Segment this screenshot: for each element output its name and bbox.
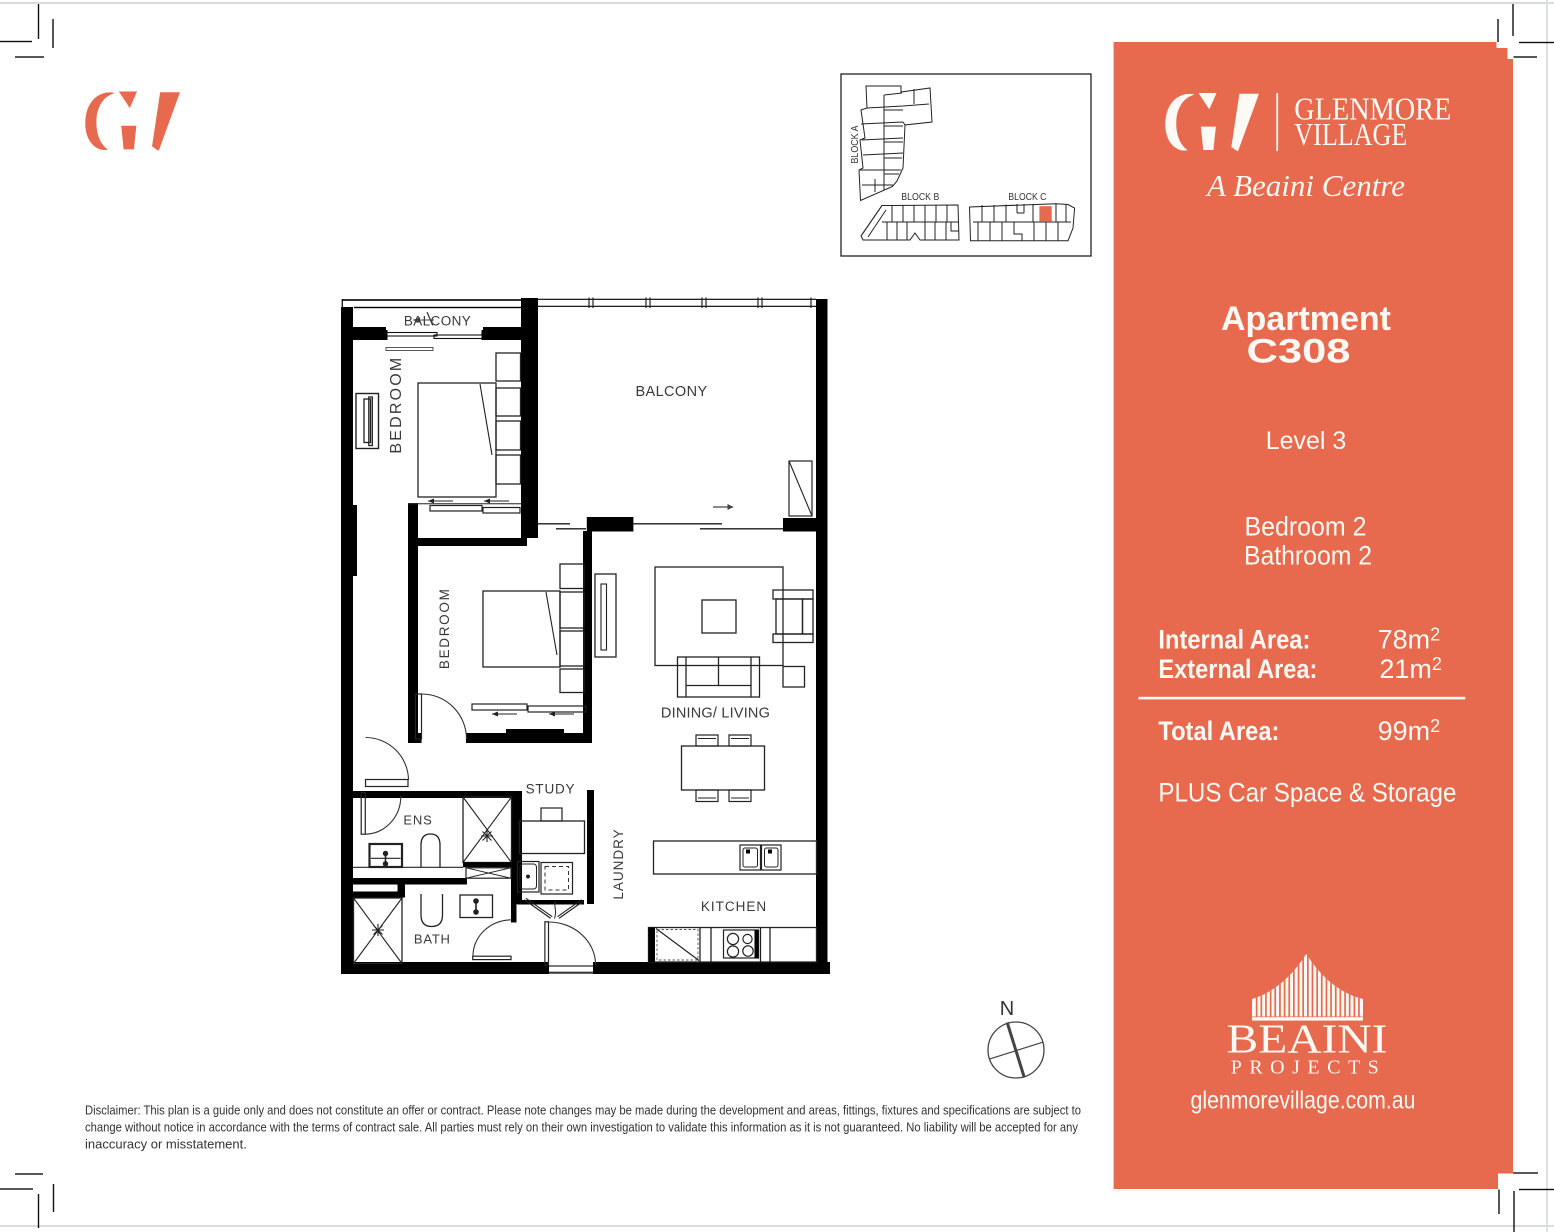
svg-text:BEAINI: BEAINI	[1227, 1016, 1388, 1062]
svg-text:BLOCK A: BLOCK A	[850, 125, 861, 163]
svg-text:BATH: BATH	[414, 932, 451, 947]
svg-text:BEDROOM: BEDROOM	[388, 356, 405, 454]
svg-text:LAUNDRY: LAUNDRY	[611, 828, 626, 899]
svg-text:Level 3: Level 3	[1266, 427, 1347, 455]
svg-text:inaccuracy or misstatement.: inaccuracy or misstatement.	[85, 1137, 247, 1152]
svg-text:PLUS Car Space & Storage: PLUS Car Space & Storage	[1158, 778, 1456, 808]
svg-text:Disclaimer: This plan is a gui: Disclaimer: This plan is a guide only an…	[85, 1103, 1081, 1118]
svg-text:A Beaini Centre: A Beaini Centre	[1205, 168, 1405, 203]
svg-text:N: N	[1000, 998, 1014, 1020]
svg-text:Internal Area:: Internal Area:	[1158, 625, 1310, 655]
svg-text:Bathroom 2: Bathroom 2	[1244, 541, 1372, 571]
svg-text:glenmorevillage.com.au: glenmorevillage.com.au	[1191, 1087, 1416, 1115]
svg-text:BEDROOM: BEDROOM	[437, 587, 452, 669]
svg-text:VILLAGE: VILLAGE	[1294, 116, 1407, 152]
svg-text:Total Area:: Total Area:	[1158, 716, 1279, 746]
svg-text:BLOCK B: BLOCK B	[901, 192, 939, 203]
svg-text:C308: C308	[1247, 333, 1351, 371]
svg-text:External Area:: External Area:	[1158, 654, 1317, 684]
svg-text:change without notice in accor: change without notice in accordance with…	[85, 1120, 1078, 1135]
svg-text:BALCONY: BALCONY	[404, 314, 471, 329]
svg-text:DINING/ LIVING: DINING/ LIVING	[661, 706, 770, 722]
svg-text:BALCONY: BALCONY	[635, 384, 707, 400]
svg-text:Bedroom 2: Bedroom 2	[1245, 512, 1367, 542]
svg-text:KITCHEN: KITCHEN	[701, 899, 767, 914]
svg-text:STUDY: STUDY	[526, 782, 576, 797]
svg-text:ENS: ENS	[403, 813, 432, 828]
svg-text:PROJECTS: PROJECTS	[1231, 1057, 1387, 1079]
svg-text:BLOCK C: BLOCK C	[1008, 192, 1046, 203]
